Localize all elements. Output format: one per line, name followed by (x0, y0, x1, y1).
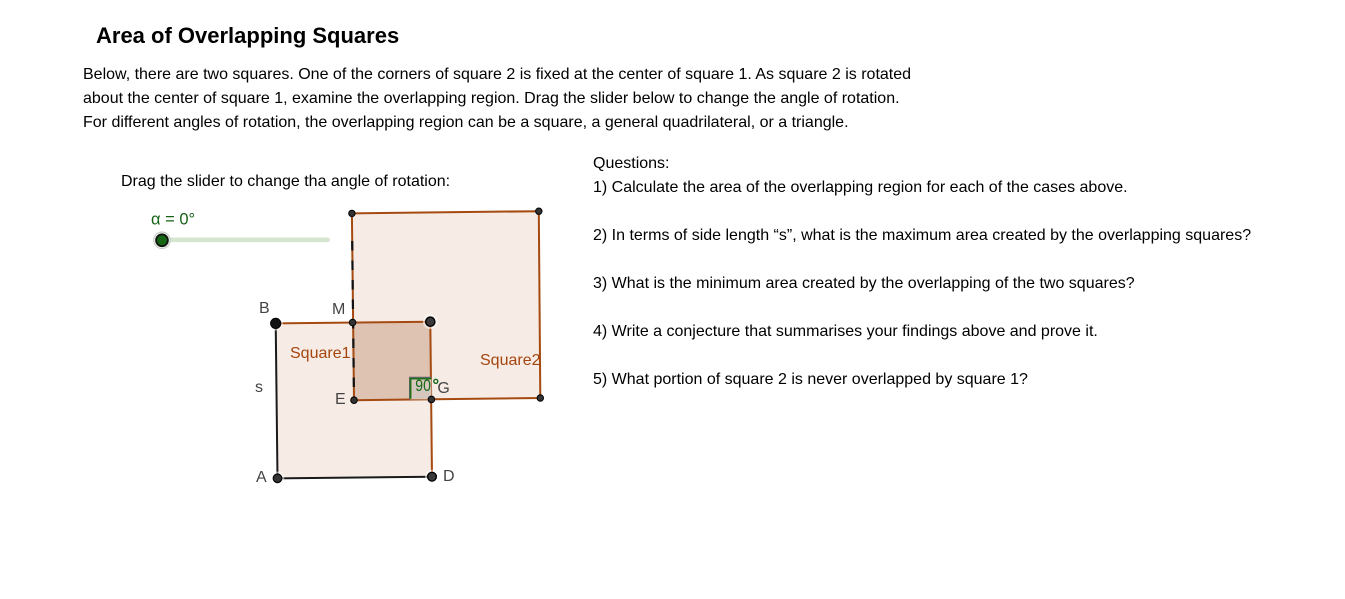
svg-text:90: 90 (415, 377, 431, 395)
svg-text:D: D (443, 468, 455, 485)
svg-text:s: s (255, 379, 263, 396)
svg-text:G: G (437, 380, 449, 397)
svg-text:α = 0°: α = 0° (151, 211, 195, 229)
svg-text:B: B (259, 300, 270, 317)
svg-text:Square1: Square1 (290, 345, 351, 362)
svg-text:A: A (256, 469, 267, 486)
svg-text:Square2: Square2 (480, 352, 541, 369)
svg-text:M: M (332, 301, 345, 318)
svg-text:E: E (335, 391, 346, 408)
